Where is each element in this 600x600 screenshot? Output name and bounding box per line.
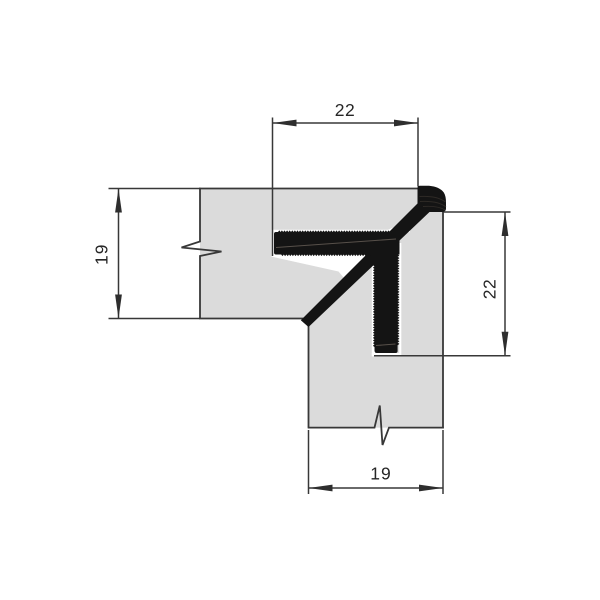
svg-text:22: 22 <box>335 100 355 120</box>
svg-text:22: 22 <box>480 279 500 299</box>
svg-text:19: 19 <box>370 464 391 484</box>
svg-text:19: 19 <box>92 244 112 265</box>
